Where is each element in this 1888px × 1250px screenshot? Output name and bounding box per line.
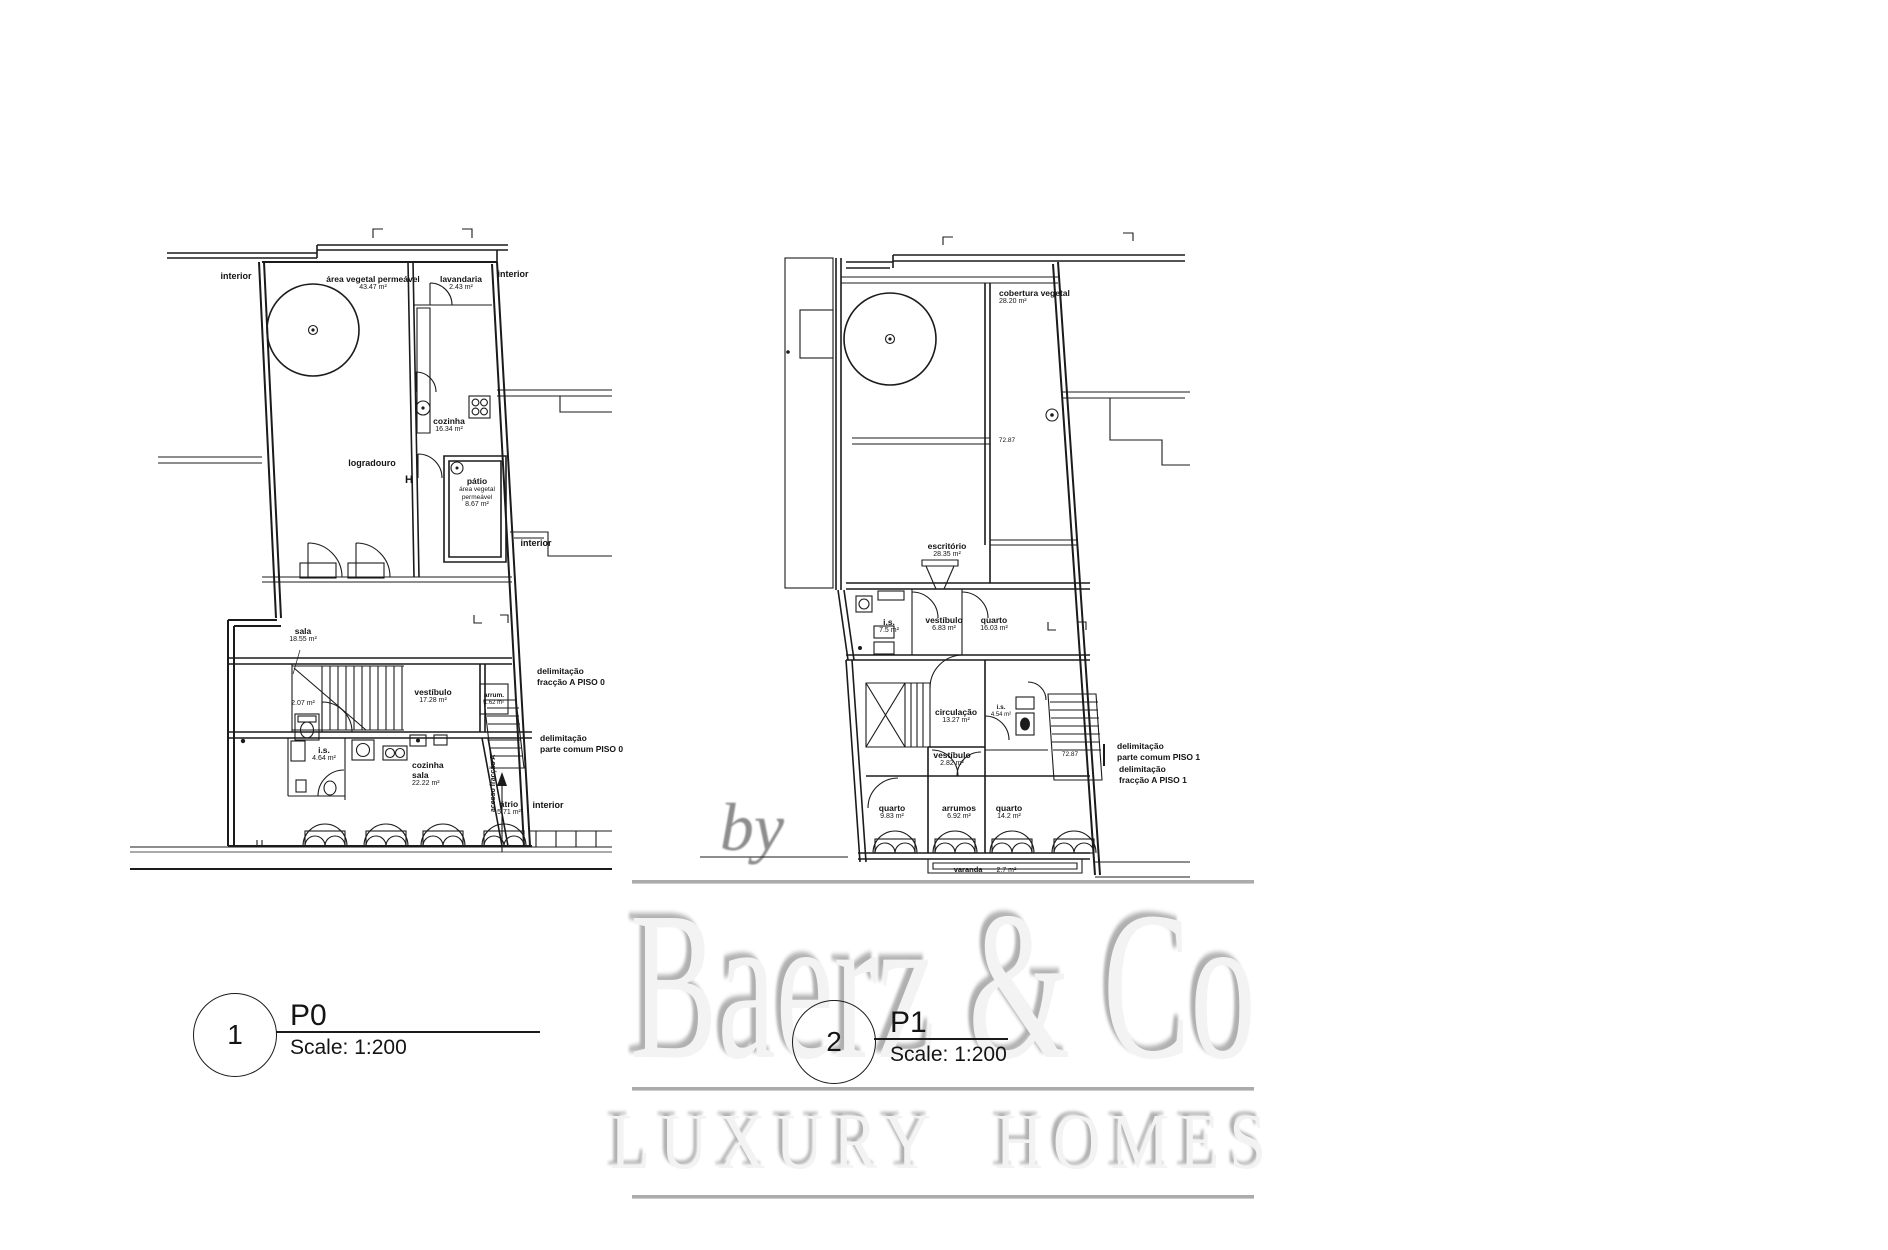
column-marker-h: H [405,474,413,487]
room-area: 8.67 m² [451,501,503,509]
room-name: cobertura vegetal [999,288,1070,298]
room-name: quarto [980,615,1008,625]
room-name: cozinha [433,416,465,426]
room-subtitle: área vegetal permeável [451,486,503,501]
delim-line2: parte comum PISO 0 [540,744,623,755]
room-area: 16.34 m² [433,426,465,434]
room-name: circulação [935,707,977,717]
legend-scale: Scale: 1:200 [890,1043,1007,1067]
room-label-vestibulo2-p1: vestíbulo2.82 m² [933,750,970,768]
room-area: 2.43 m² [440,284,482,292]
room-name: lavandaria [440,274,482,284]
room-name: arrum. [484,692,504,700]
room-area: 2.7 m² [996,867,1016,874]
elevation-marker-stair: 72.87 [1062,751,1078,759]
delim-line1: delimitação [537,666,605,677]
room-name: átrio [497,799,521,809]
room-label-is1-p1: i.s.7.5 m² [879,617,899,635]
room-label-patio: pátioárea vegetal permeável8.67 m² [451,476,503,510]
room-area: 2.07 m² [291,700,315,708]
room-name: área vegetal permeável [326,274,420,284]
room-name: arrumos [942,803,976,813]
room-label-lavandaria: lavandaria2.43 m² [440,274,482,292]
room-area: 43.47 m² [326,284,420,292]
room-label-small-207: 2.07 m² [291,700,315,708]
room-label-cozinha-p0: cozinha16.34 m² [433,416,465,434]
area-label-logradouro: logradouro [348,458,396,468]
legend-number: 1 [227,1019,243,1051]
room-label-sala: sala18.55 m² [289,626,317,644]
legend-title: P0 [290,999,327,1033]
room-name: i.s. [879,617,899,627]
room-label-quarto2-p1: quarto9.83 m² [879,803,905,821]
room-area: 4.64 m² [312,755,336,763]
delim-line1: delimitação [1119,764,1187,775]
room-area: 18.55 m² [289,636,317,644]
room-name: pátio [451,476,503,486]
area-label-interior-top-left: interior [220,271,251,281]
area-label-interior-mid-right: interior [520,538,551,548]
delim-line2: parte comum PISO 1 [1117,752,1200,763]
room-label-atrio: átrio5.71 m² [497,799,521,817]
legend-number-circle: 1 [193,993,277,1077]
legend-number: 2 [826,1026,842,1058]
room-area: 28.35 m² [928,551,967,559]
legend-title: P1 [890,1006,927,1040]
legend-number-circle: 2 [792,1000,876,1084]
room-label-cobertura: cobertura vegetal28.20 m² [999,288,1070,306]
room-label-quarto3-p1: quarto14.2 m² [996,803,1022,821]
room-label-is-p0: i.s.4.64 m² [312,745,336,763]
room-area: 17.28 m² [414,697,451,705]
delimitation-label-fraccao-p0: delimitaçãofracção A PISO 0 [537,666,605,687]
annotation-layer: interior área vegetal permeável43.47 m² … [0,0,1888,1250]
room-area: 6.92 m² [942,813,976,821]
delim-line2: fracção A PISO 1 [1119,775,1187,786]
room-area: 22.22 m² [412,780,460,788]
room-name: i.s. [312,745,336,755]
room-name: sala [289,626,317,636]
room-label-vestibulo-p0: vestíbulo17.28 m² [414,687,451,705]
room-name: i.s. [991,704,1011,712]
room-name: varanda [954,865,983,874]
room-area: 1.62 m² [484,700,504,707]
room-name: quarto [879,803,905,813]
legend-underline [276,1031,540,1033]
room-label-varanda: varanda2.7 m² [954,859,1017,878]
room-name: vestíbulo [414,687,451,697]
room-name: quarto [996,803,1022,813]
marker-text: 72.87 [999,437,1015,445]
room-label-quarto1-p1: quarto16.03 m² [980,615,1008,633]
delimitation-label-comum-p1: delimitaçãoparte comum PISO 1 [1117,741,1200,762]
room-label-escritorio: escritório28.35 m² [928,541,967,559]
elevation-marker-roof: 72.87 [999,437,1015,445]
room-label-arrum: arrum.1.62 m² [484,692,504,707]
room-area: 13.27 m² [935,717,977,725]
room-name: escritório [928,541,967,551]
room-area: 9.83 m² [879,813,905,821]
room-label-cozinha-sala: cozinha sala22.22 m² [412,760,460,788]
drawing-sheet: by Baerz & Co Baerz & Co LUXURY HOMES LU… [0,0,1888,1250]
room-name: vestíbulo [925,615,962,625]
room-area: 7.5 m² [879,627,899,635]
room-area: 28.20 m² [999,298,1070,306]
legend-underline [874,1038,1008,1040]
room-name: vestíbulo [933,750,970,760]
room-area: 5.71 m² [497,809,521,817]
room-name: cozinha sala [412,760,460,780]
room-area: 6.83 m² [925,625,962,633]
room-label-is2-p1: i.s.4.54 m² [991,704,1011,719]
room-area: 16.03 m² [980,625,1008,633]
area-label-interior-top-right: interior [497,269,528,279]
area-label-interior-bottom-right: interior [532,800,563,810]
room-label-circulacao: circulação13.27 m² [935,707,977,725]
stair-label-acesso-fraccao: acesso fracção A [490,755,497,812]
legend-scale: Scale: 1:200 [290,1036,407,1060]
delim-line1: delimitação [540,733,623,744]
delim-line1: delimitação [1117,741,1200,752]
room-area: 2.82 m² [933,760,970,768]
room-area: 4.54 m² [991,712,1011,719]
room-label-arrumos: arrumos6.92 m² [942,803,976,821]
delim-line2: fracção A PISO 0 [537,677,605,688]
room-label-area-vegetal: área vegetal permeável43.47 m² [326,274,420,292]
delimitation-label-fraccao-p1: delimitaçãofracção A PISO 1 [1119,764,1187,785]
marker-text: H [405,474,413,487]
marker-text: 72.87 [1062,751,1078,759]
room-label-vestibulo1-p1: vestíbulo6.83 m² [925,615,962,633]
delimitation-label-comum-p0: delimitaçãoparte comum PISO 0 [540,733,623,754]
room-area: 14.2 m² [996,813,1022,821]
